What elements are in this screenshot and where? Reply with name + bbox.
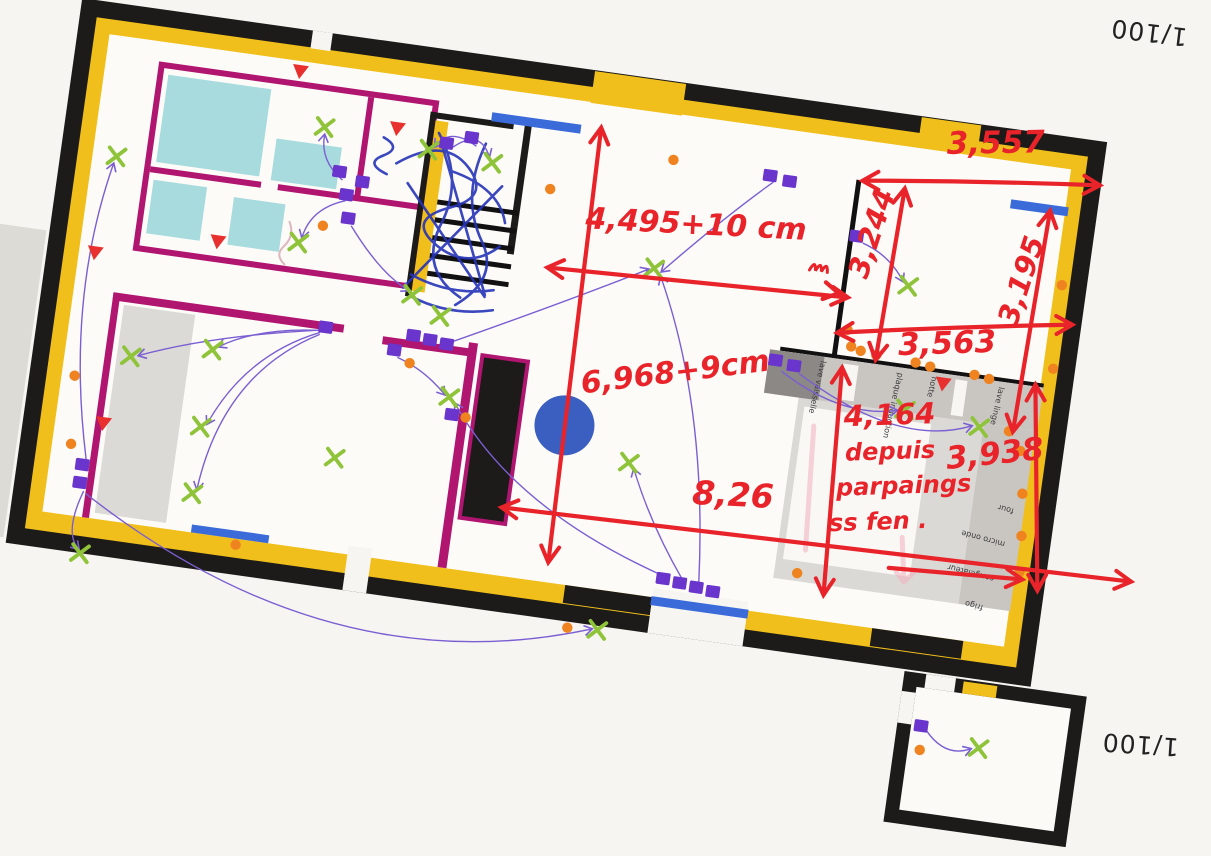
measurement-label: 3,557 [946,124,1045,162]
socket-symbol [444,408,460,422]
socket-symbol [913,719,929,733]
cellar-floor [899,687,1071,832]
socket-symbol [387,343,403,357]
floor-plan-svg: lave vaisselle plaque induction hotte la… [0,0,1211,856]
socket-symbol [688,580,704,594]
socket-symbol [786,359,802,373]
socket-symbol [762,169,778,183]
socket-symbol [332,165,348,179]
socket-symbol [655,572,671,586]
socket-symbol [72,476,88,490]
socket-symbol [705,585,721,599]
socket-symbol [782,174,798,188]
socket-symbol [768,353,784,367]
outlet-dot-symbol [561,622,573,634]
socket-symbol [339,188,355,202]
socket-symbol [406,329,422,343]
socket-symbol [355,175,371,189]
floor-plan-group: lave vaisselle plaque induction hotte la… [0,0,1191,851]
measurement-label: 3,563 [898,324,997,363]
socket-symbol [318,320,334,334]
washbasin-fixture [227,197,285,252]
bath-fixture [146,180,207,241]
socket-symbol [439,337,455,351]
scale-label-bottom-right: 1/100 [1101,727,1180,761]
measurement-label: 8,26 [691,473,774,516]
scale-label-top-right: 1/100 [1109,13,1189,51]
socket-symbol [75,458,91,472]
socket-symbol [340,211,356,225]
top-wall-opening [310,30,332,51]
shower-fixture [156,75,271,177]
socket-symbol [672,576,688,590]
scanned-floor-plan: lave vaisselle plaque induction hotte la… [0,0,1211,856]
socket-symbol [439,136,455,150]
measurement-note: ss fen . [829,506,928,537]
socket-symbol [422,333,438,347]
measurement-label: 4,164 [842,396,936,433]
socket-symbol [464,131,480,145]
cellar-room [883,671,1086,847]
measurement-note: depuis [844,436,935,467]
